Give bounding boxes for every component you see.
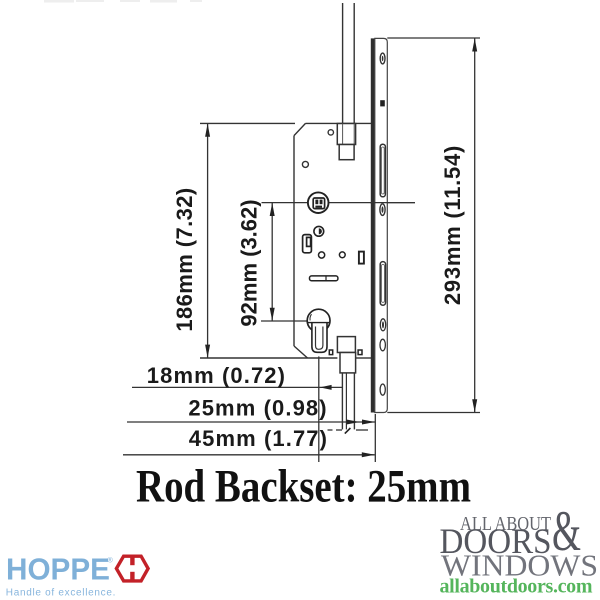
svg-text:®: ® [107,556,113,565]
svg-text:Rod Backset: 25mm: Rod Backset: 25mm [136,461,471,513]
svg-text:45mm (1.77): 45mm (1.77) [189,426,328,451]
svg-text:18mm (0.72): 18mm (0.72) [147,363,286,388]
svg-text:293mm (11.54): 293mm (11.54) [440,145,465,305]
svg-text:186mm (7.32): 186mm (7.32) [172,187,197,331]
svg-text:25mm (0.98): 25mm (0.98) [188,396,327,421]
svg-text:Handle of excellence.: Handle of excellence. [6,587,116,598]
svg-text:92mm (3.62): 92mm (3.62) [237,199,262,326]
svg-text:allaboutdoors.com: allaboutdoors.com [440,576,593,598]
svg-text:HOPPE: HOPPE [6,552,110,587]
